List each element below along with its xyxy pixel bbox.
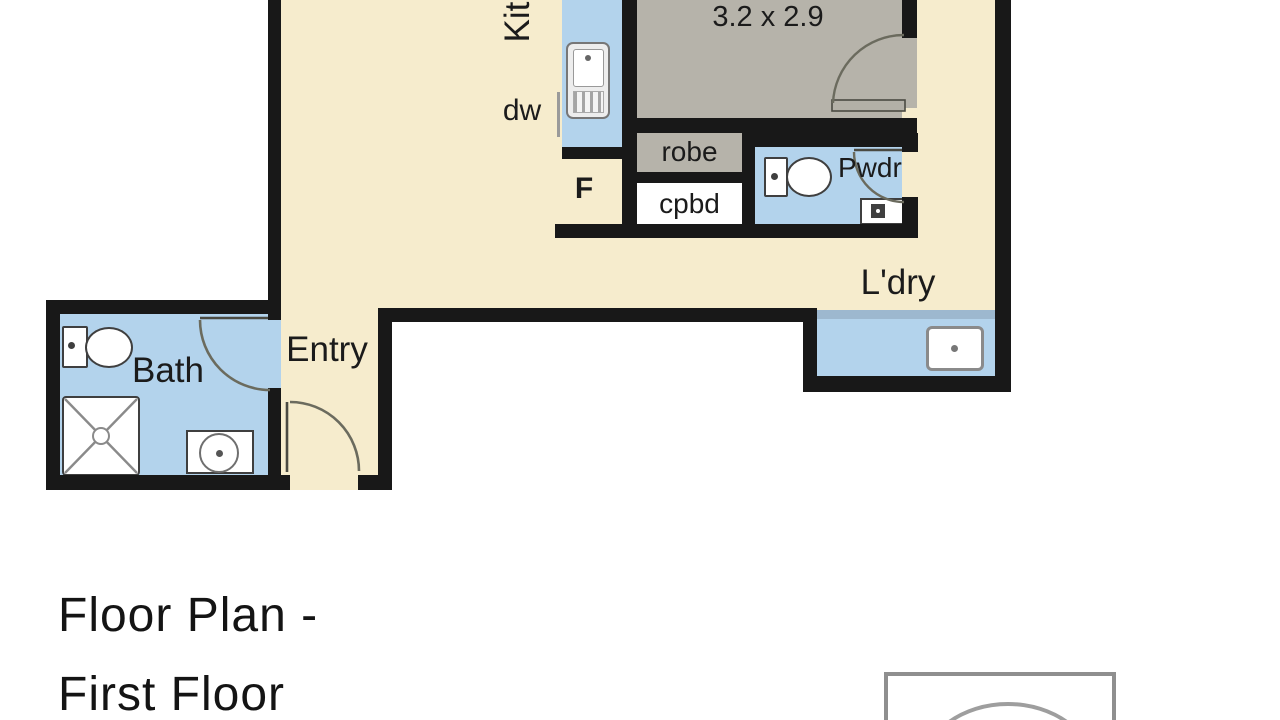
plan-caption-line1: Floor Plan - bbox=[58, 576, 318, 655]
bedroom-door-gap bbox=[902, 38, 917, 108]
wall bbox=[742, 118, 755, 238]
wall bbox=[46, 475, 290, 490]
wall bbox=[378, 308, 392, 490]
wall bbox=[622, 118, 917, 133]
wall bbox=[995, 0, 1011, 392]
dishwasher-front-line bbox=[557, 92, 560, 137]
label-powder: Pwdr bbox=[838, 151, 930, 185]
label-fridge: F bbox=[566, 172, 602, 206]
kitchen-drainer bbox=[573, 91, 604, 113]
wall bbox=[555, 224, 918, 238]
wall bbox=[562, 147, 624, 159]
floor-plan-canvas: Kit 3.2 x 2.9 dw F robe cpbd Pwdr L'dry … bbox=[0, 0, 1280, 720]
label-bath: Bath bbox=[118, 350, 218, 392]
label-kitchen-text: Kit bbox=[498, 2, 538, 43]
label-robe: robe bbox=[637, 132, 742, 171]
label-cupboard: cpbd bbox=[637, 183, 742, 224]
label-dishwasher: dw bbox=[495, 94, 549, 128]
wall bbox=[803, 376, 1011, 392]
wall bbox=[622, 172, 755, 183]
powder-basin-drain bbox=[876, 209, 880, 213]
shower-tray bbox=[62, 396, 140, 476]
label-laundry: L'dry bbox=[843, 261, 953, 305]
wall bbox=[902, 133, 918, 152]
label-kitchen: Kit bbox=[490, 0, 546, 54]
label-bedroom-dims: 3.2 x 2.9 bbox=[688, 0, 848, 34]
bath-vanity-drain bbox=[216, 450, 223, 457]
wall bbox=[268, 0, 281, 320]
wall bbox=[378, 308, 817, 322]
wall bbox=[46, 300, 60, 490]
bath-toilet-button bbox=[68, 342, 75, 349]
wall bbox=[902, 197, 918, 238]
label-entry: Entry bbox=[274, 329, 380, 371]
laundry-trough-drain bbox=[951, 345, 958, 352]
wall bbox=[742, 133, 917, 147]
wall bbox=[46, 300, 268, 314]
plan-caption: Floor Plan - First Floor bbox=[58, 576, 318, 720]
kitchen-sink-tap bbox=[585, 55, 591, 61]
powder-toilet-button bbox=[771, 173, 778, 180]
plan-caption-line2: First Floor bbox=[58, 655, 318, 720]
wall bbox=[902, 0, 917, 38]
powder-toilet-bowl bbox=[786, 157, 832, 197]
